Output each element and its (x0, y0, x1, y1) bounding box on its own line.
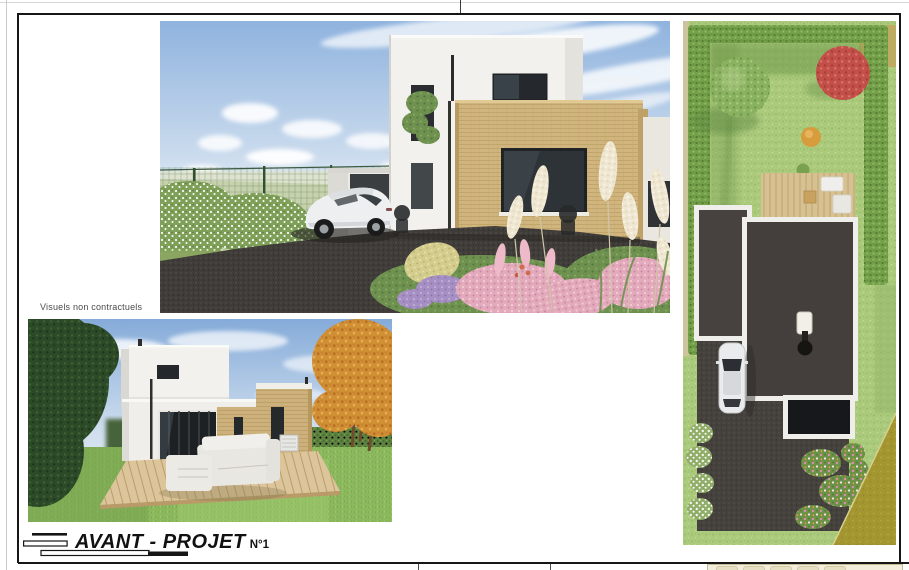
patio-furniture (821, 177, 843, 191)
logo-chip (824, 566, 846, 570)
downpipe (451, 55, 454, 101)
avant-projet-sheet: Visuels non contractuels AVANT - PROJETN… (0, 0, 909, 570)
title-main: AVANT - PROJET (75, 531, 246, 553)
title-number: N°1 (250, 539, 269, 551)
cartouche-divider (418, 564, 419, 570)
logo-chip (743, 566, 765, 570)
upper-window (157, 365, 179, 379)
roof-main (747, 222, 853, 396)
logo-chip (797, 566, 819, 570)
aerial-render-graphic (683, 21, 896, 545)
top-fold-mark (460, 0, 461, 13)
ac-unit (280, 435, 298, 451)
cartouche-logo-box (707, 564, 903, 570)
lower-window (411, 163, 433, 209)
logo-chip (770, 566, 792, 570)
page-title: AVANT - PROJETN°1 (75, 531, 269, 554)
logo-chip (716, 566, 738, 570)
front-render-graphic (160, 21, 670, 313)
roof-garage (788, 400, 850, 434)
red-tree (816, 46, 870, 100)
visuals-disclaimer-note: Visuels non contractuels (40, 302, 142, 312)
cartouche-divider (550, 564, 551, 570)
render-back-terrace (28, 319, 392, 522)
terrace-deck (761, 173, 855, 222)
downpipe (150, 379, 153, 459)
parked-car-top-view (716, 343, 756, 417)
sheet-top-guide-line (0, 2, 909, 3)
roof-left-wing (699, 210, 747, 336)
title-bar: AVANT - PROJETN°1 (23, 531, 343, 561)
render-aerial-site-plan (683, 21, 896, 545)
back-render-graphic (28, 319, 392, 522)
sheet-left-guide-line (6, 0, 7, 570)
roof-vent (797, 312, 813, 356)
render-front-perspective (160, 21, 670, 313)
